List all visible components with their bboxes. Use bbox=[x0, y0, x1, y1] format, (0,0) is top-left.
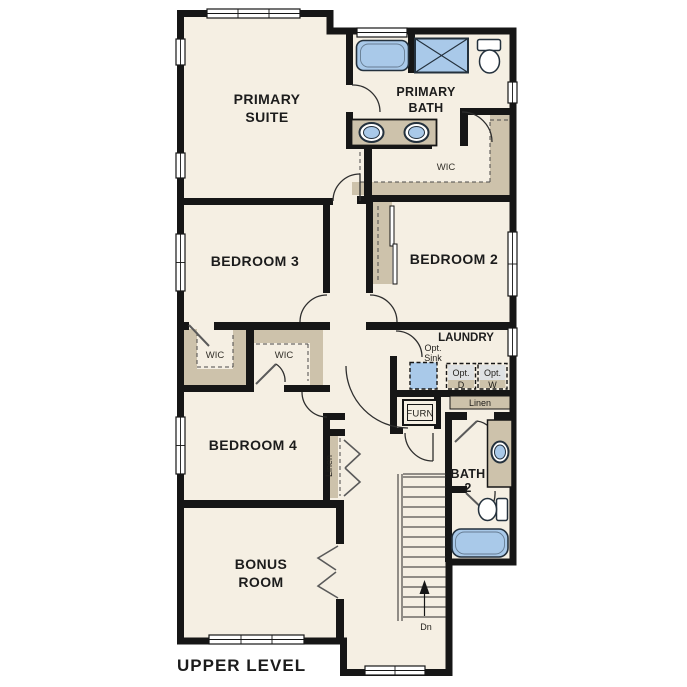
label-opt-sink: Opt. bbox=[424, 343, 441, 353]
window bbox=[508, 328, 517, 356]
svg-text:Sink: Sink bbox=[424, 353, 442, 363]
window bbox=[207, 9, 300, 18]
svg-text:ROOM: ROOM bbox=[238, 574, 283, 590]
label-opt-washer: Opt. bbox=[484, 368, 501, 378]
toilet-icon-primary bbox=[478, 40, 501, 74]
window bbox=[357, 28, 407, 37]
label-furnace: FURN bbox=[406, 409, 433, 420]
label-bath2: BATH bbox=[451, 467, 486, 481]
label-linen-hall: Linen bbox=[324, 455, 334, 477]
window bbox=[176, 153, 185, 178]
window bbox=[176, 39, 185, 65]
label-laundry: LAUNDRY bbox=[438, 332, 494, 344]
window bbox=[209, 635, 304, 644]
floor-plan: PRIMARY SUITE PRIMARY BATH WIC BEDROOM 3… bbox=[0, 0, 687, 687]
optional-sink-icon bbox=[410, 363, 437, 390]
label-primary-bath: PRIMARY bbox=[396, 85, 456, 99]
svg-text:D: D bbox=[458, 380, 465, 390]
label-linen-laundry: Linen bbox=[469, 398, 491, 408]
label-wic-bedroom3: WIC bbox=[206, 350, 225, 361]
window bbox=[176, 417, 185, 474]
svg-text:W: W bbox=[488, 380, 497, 390]
bathtub-icon-bath2 bbox=[452, 529, 508, 557]
window bbox=[176, 234, 185, 291]
window bbox=[508, 232, 517, 296]
svg-text:2: 2 bbox=[464, 481, 471, 495]
double-vanity-icon bbox=[352, 120, 437, 146]
label-opt-dryer: Opt. bbox=[452, 368, 469, 378]
bathtub-icon bbox=[357, 41, 409, 71]
shower-icon bbox=[415, 39, 468, 73]
label-primary-suite: PRIMARY bbox=[234, 91, 301, 107]
svg-text:SUITE: SUITE bbox=[245, 109, 288, 125]
label-bonus-room: BONUS bbox=[235, 556, 288, 572]
label-stairs-dn: Dn bbox=[420, 622, 432, 632]
vanity-icon-bath2 bbox=[488, 420, 513, 487]
window bbox=[365, 666, 425, 675]
label-primary-wic: WIC bbox=[437, 162, 456, 173]
label-bedroom4: BEDROOM 4 bbox=[209, 437, 297, 453]
label-bedroom2: BEDROOM 2 bbox=[410, 251, 498, 267]
window bbox=[508, 82, 517, 103]
label-wic-bedroom4: WIC bbox=[275, 350, 294, 361]
toilet-icon-bath2 bbox=[479, 499, 508, 521]
svg-text:BATH: BATH bbox=[409, 101, 444, 115]
label-bedroom3: BEDROOM 3 bbox=[211, 253, 299, 269]
page-title: UPPER LEVEL bbox=[177, 656, 306, 675]
